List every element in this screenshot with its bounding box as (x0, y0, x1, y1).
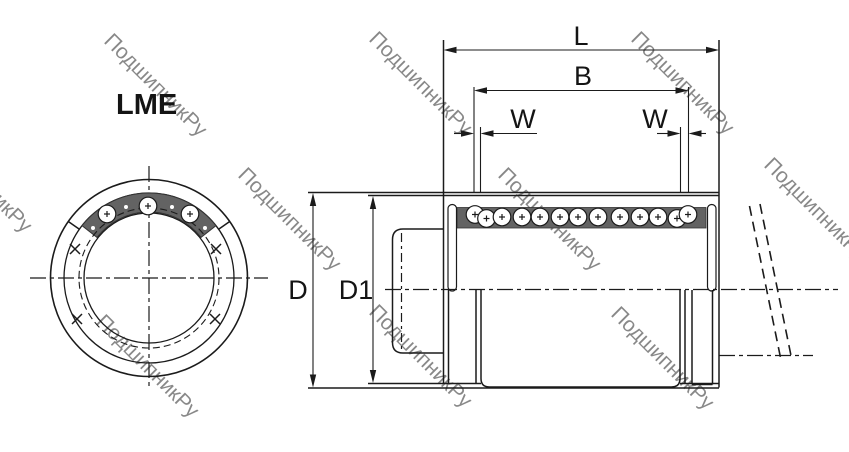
track-end-line-right (219, 222, 230, 230)
dim-label-L: L (573, 21, 588, 51)
drawing-canvas: ПодшипникРу ПодшипникРу ПодшипникРу Подш… (0, 0, 849, 452)
arrowhead (370, 196, 376, 209)
retainer-dot (91, 226, 95, 230)
dimension-L: L (444, 21, 720, 53)
ball (513, 208, 531, 226)
cross-mark (210, 314, 220, 324)
ball (478, 210, 496, 228)
ball (551, 208, 569, 226)
ball (589, 208, 607, 226)
dim-label-D: D (288, 275, 308, 305)
ball (631, 208, 649, 226)
series-label: LME (116, 89, 177, 121)
track-end-line-left (68, 222, 79, 230)
ball (679, 206, 697, 224)
arrowhead (310, 193, 316, 206)
dimension-W-right: W (642, 104, 706, 193)
watermark-text: ПодшипникРу (0, 125, 37, 237)
retainer-dot (203, 226, 207, 230)
ball (611, 208, 629, 226)
ball (649, 208, 667, 226)
watermark-text: ПодшипникРу (606, 302, 718, 414)
arrowhead (668, 130, 681, 136)
retainer-dot (124, 205, 128, 209)
watermark-layer: ПодшипникРу ПодшипникРу ПодшипникРу Подш… (0, 27, 849, 422)
side-view: L B W W (288, 21, 838, 388)
arrowhead (370, 370, 376, 383)
watermark-text: ПодшипникРу (91, 310, 203, 422)
arrowhead (706, 47, 719, 53)
dim-label-B: B (574, 61, 592, 91)
front-view (30, 166, 268, 389)
bearing-technical-drawing: ПодшипникРу ПодшипникРу ПодшипникРу Подш… (0, 0, 849, 452)
watermark-text: ПодшипникРу (233, 163, 345, 275)
ball (493, 208, 511, 226)
ball (531, 208, 549, 226)
ball (139, 197, 157, 215)
arrowhead (474, 87, 487, 93)
watermark-text: ПодшипникРу (364, 27, 476, 139)
ball (181, 205, 199, 223)
watermark-text: ПодшипникРу (99, 29, 211, 141)
arrowhead (481, 130, 494, 136)
retainer-dot (170, 205, 174, 209)
dim-label-D1: D1 (339, 275, 374, 305)
arrowhead (689, 130, 702, 136)
watermark-text: ПодшипникРу (759, 153, 849, 265)
dim-label-W-left: W (510, 104, 536, 134)
arrowhead (444, 47, 457, 53)
watermark-text: ПодшипникРу (364, 300, 476, 412)
ball (98, 205, 116, 223)
seal-groove-right (708, 205, 717, 292)
seal-groove-left (448, 205, 457, 292)
cross-mark (70, 244, 80, 254)
dim-label-W-right: W (642, 104, 668, 134)
arrowhead (310, 375, 316, 388)
dimension-D1: D1 (339, 196, 376, 383)
ball (569, 208, 587, 226)
